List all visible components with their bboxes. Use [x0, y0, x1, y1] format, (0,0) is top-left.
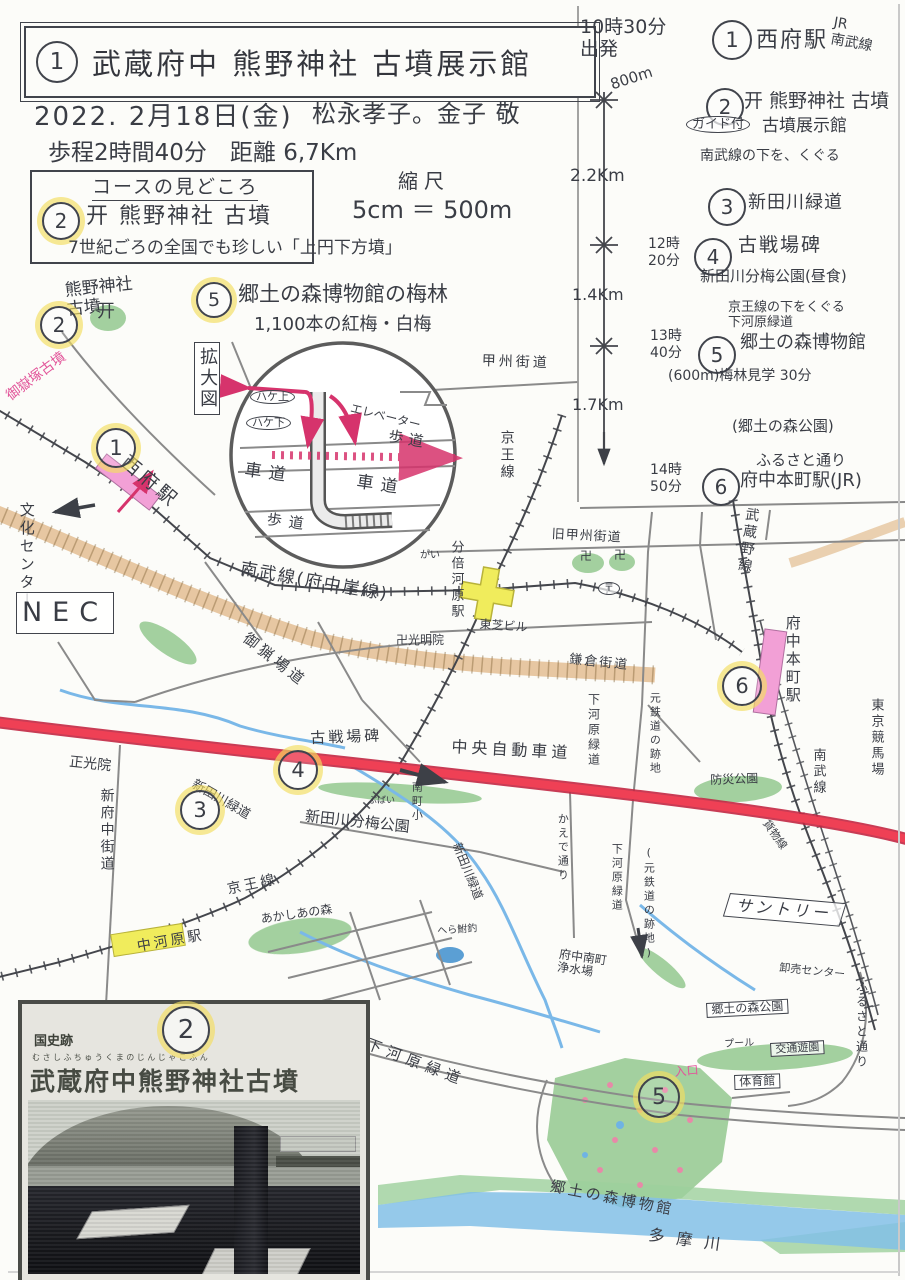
inset-label-hake-ue: ハケ上: [250, 390, 295, 404]
magnified-inset-circle: [231, 343, 455, 567]
map-furigana-bubai: ぶばい: [368, 796, 395, 806]
leg-dist-2: 2.2Km: [570, 166, 625, 186]
map-label-shin-fuchu-kaido: 新府中街道: [98, 788, 114, 873]
page-title: 武蔵府中 熊野神社 古墳展示館: [92, 41, 532, 83]
map-label-shimogawara-ryokudo-upper: 下河原緑道: [586, 693, 599, 768]
map-label-entrance: 入口: [674, 1064, 699, 1079]
highlight-badge-2: 2: [42, 202, 80, 240]
map-label-shimogawara-ryokudo-lower: 下河原緑道: [610, 843, 622, 913]
map-label-kaede-dori: かえで通り: [556, 813, 568, 883]
stop-badge-6: 6: [702, 468, 740, 506]
highlight-item-5: 郷土の森博物館の梅林: [238, 282, 448, 307]
map-furigana-gai: がい: [420, 550, 440, 561]
highlight-note-2: 7世紀ごろの全国でも珍しい「上円下方墳」: [68, 238, 588, 258]
stop-2-note: 南武線の下を、くぐる: [700, 148, 840, 165]
map-badge-4: 4: [278, 750, 318, 790]
map-label-kakudaizu: 拡大図: [194, 342, 220, 415]
stop-6-name: 府中本町駅(JR): [740, 470, 862, 491]
temple-icon-2: 卍: [614, 549, 626, 562]
map-label-fuchuhommachi-station: 府中本町駅: [784, 615, 801, 705]
temple-icon-1: 卍: [580, 550, 592, 563]
map-label-minamicho-elementary: 南町小: [410, 781, 422, 823]
map-badge-6: 6: [722, 666, 762, 706]
highlight-badge-5: 5: [196, 282, 232, 318]
photo-badge: 2: [162, 1006, 210, 1054]
stop-6-time: 14時 50分: [650, 462, 682, 495]
stop-4-note: 新田川分梅公園(昼食): [700, 268, 847, 286]
torii-icon: 开: [97, 302, 115, 322]
stop-4-time: 12時 20分: [648, 236, 680, 269]
stop-2-name: 开 熊野神社 古墳: [744, 90, 889, 112]
map-label-tokyo-racecourse: 東京競馬場: [868, 698, 883, 778]
map-badge-2: 2: [40, 306, 78, 344]
map-label-koshu-kaido: 甲州街道: [481, 354, 550, 372]
photo-title: 武蔵府中熊野神社古墳: [30, 1062, 300, 1098]
map-label-former-railway-site-2: (元鉄道の跡地): [642, 846, 654, 962]
kofun-photo-inset: 2 国史跡 むさしふちゅうくまのじんじゃこふん 武蔵府中熊野神社古墳: [18, 1000, 370, 1280]
stop-5-note: (600m)梅林見学 30分: [668, 368, 812, 385]
inset-label-hake-shita: ハケ下: [246, 416, 291, 430]
stop-badge-1: 1: [712, 20, 752, 60]
date-line: 2022. 2月18日(金): [34, 102, 293, 133]
stop-3-name: 新田川緑道: [748, 192, 843, 213]
stop-5-time: 13時 40分: [650, 328, 682, 361]
map-label-nanbu-line-south: 南武線: [810, 748, 825, 796]
map-label-keio-line-upper: 京王線: [498, 430, 514, 481]
map-badge-1: 1: [96, 428, 136, 468]
map-label-pool: プール: [724, 1037, 755, 1050]
highlight-note-5: 1,100本の紅梅・白梅: [254, 314, 432, 335]
map-label-komyoin-temple: 卍光明院: [396, 634, 444, 647]
map-label-kotsu-yuen: 交通遊園: [770, 1040, 825, 1057]
map-label-bosai-park: 防災公園: [710, 772, 758, 787]
scale-value: 5cm ＝ 500m: [352, 196, 512, 224]
highlights-title: コースの見どころ: [92, 176, 258, 201]
stop-2-tag: ガイド付: [686, 116, 750, 133]
map-label-furusato-dori: ふるさと通り: [854, 980, 867, 1070]
stop-2-name2: 古墳展示館: [762, 116, 847, 136]
map-label-bubaigawara-station: 分倍河原駅: [448, 540, 463, 620]
stop-badge-3: 3: [708, 188, 746, 226]
title-badge: 1: [36, 41, 78, 83]
leg-dist-4: 1.7Km: [572, 396, 624, 415]
walk-stats: 歩程2時間40分 距離 6,7Km: [48, 140, 357, 167]
photo-heritage-label: 国史跡: [34, 1030, 73, 1049]
stop-5-name: 郷土の森博物館: [740, 332, 866, 353]
stop-4-name: 古戦場碑: [738, 234, 822, 256]
kofun-photo: [28, 1100, 360, 1274]
highlight-item-2: 开 熊野神社 古墳: [86, 204, 272, 230]
leg-dist-3: 1.4Km: [572, 286, 624, 305]
map-badge-3: 3: [180, 790, 220, 830]
stop-1-note: JR 南武線: [829, 15, 876, 55]
title-box: 1 武蔵府中 熊野神社 古墳展示館: [24, 26, 596, 98]
map-label-former-railway-site: 元鉄道の跡地: [648, 692, 660, 776]
map-label-kosenjohi: 古戦場碑: [310, 727, 383, 746]
map-label-nec: NEC: [16, 592, 114, 634]
map-badge-5: 5: [638, 1076, 680, 1118]
scale-label: 縮尺: [398, 170, 450, 194]
stop-1-name: 西府駅: [756, 28, 828, 54]
bubaigawara-station-marker: [457, 564, 517, 624]
participants: 松永孝子。金子 敬: [312, 100, 521, 128]
stop-4-after: 京王線の下をくぐる 下河原緑道: [728, 300, 845, 331]
depart-time: 10時30分 出発: [580, 16, 666, 61]
hand-drawn-walking-map-page: 1 武蔵府中 熊野神社 古墳展示館 2022. 2月18日(金) 松永孝子。金子…: [0, 0, 905, 1280]
railway-musashino-line: [733, 500, 875, 1030]
map-label-taiikukan: 体育館: [734, 1073, 781, 1090]
stop-5-note2: (郷土の森公園): [732, 418, 834, 436]
stop-6-pre: ふるさと通り: [756, 452, 846, 470]
